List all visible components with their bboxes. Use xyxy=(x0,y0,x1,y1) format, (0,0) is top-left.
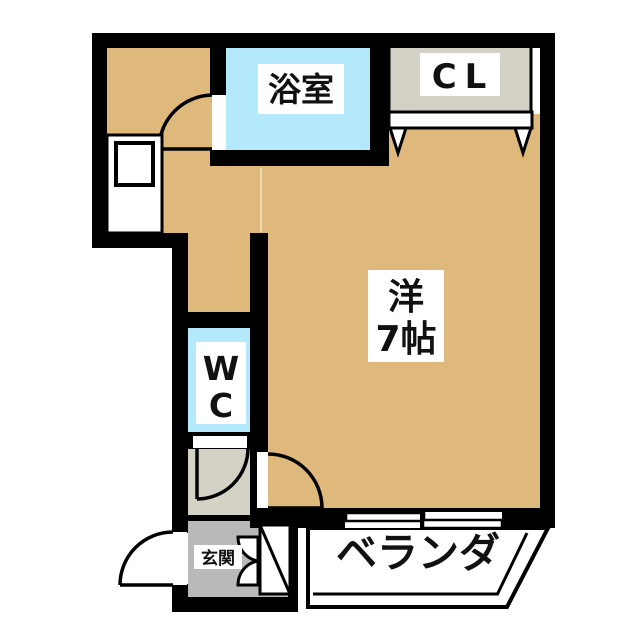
window-center-tick xyxy=(420,509,424,528)
wall-entrance-bottom xyxy=(172,597,298,612)
wc-label-line2: C xyxy=(209,386,233,425)
western-room-label-line1: 洋 xyxy=(388,277,424,318)
window-sliding-panel-right xyxy=(423,520,502,528)
western-room-label-line2: 7帖 xyxy=(375,319,436,360)
entrance-door-opening xyxy=(173,532,187,585)
wall-left xyxy=(92,33,107,248)
wall-top xyxy=(92,33,555,48)
floor-plan-svg: 浴室 CL 洋 7帖 W C 玄関 ベランダ xyxy=(0,0,640,640)
bathroom-label: 浴室 xyxy=(268,70,334,109)
floor-plan-page: 浴室 CL 洋 7帖 W C 玄関 ベランダ xyxy=(0,0,640,640)
kitchen-sink xyxy=(116,143,153,185)
closet-door-track xyxy=(389,112,532,128)
wall-bathroom-bottom xyxy=(210,150,389,166)
western-room-door-opening xyxy=(257,452,268,508)
wall-corridor-left xyxy=(172,233,188,533)
veranda-label: ベランダ xyxy=(336,529,500,577)
closet-label: CL xyxy=(432,57,495,97)
wall-right xyxy=(540,33,555,528)
wall-wc-top xyxy=(188,312,252,328)
entrance-step-line xyxy=(188,515,252,521)
wc-label-line1: W xyxy=(203,349,239,388)
window-sliding-panel-left xyxy=(346,513,424,521)
wall-bathroom-left xyxy=(210,33,226,95)
wc-door-opening xyxy=(193,436,247,448)
entrance-label: 玄関 xyxy=(201,548,235,569)
wall-bathroom-closet-divider xyxy=(370,33,389,166)
bathroom-door-opening xyxy=(212,95,226,150)
